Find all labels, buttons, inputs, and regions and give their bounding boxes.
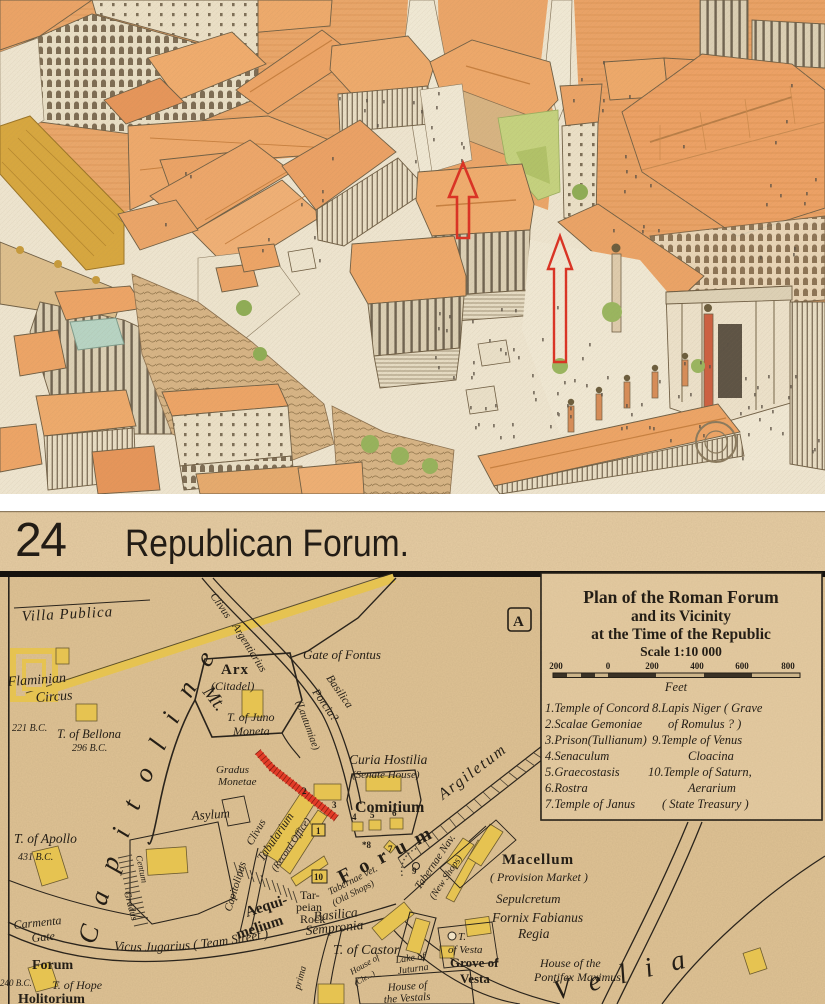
svg-text:T. of Bellona: T. of Bellona: [57, 727, 121, 741]
svg-text:6.Rostra: 6.Rostra: [545, 781, 588, 795]
svg-text:200: 200: [645, 661, 659, 671]
svg-text:T. of Hope: T. of Hope: [52, 978, 103, 992]
svg-text:Cloacina: Cloacina: [688, 749, 734, 763]
svg-text:Comitium: Comitium: [355, 799, 425, 816]
svg-text:T.: T.: [458, 931, 466, 943]
svg-text:Gradus: Gradus: [216, 764, 249, 776]
svg-text:at the Time of the Republic: at the Time of the Republic: [591, 626, 771, 643]
svg-text:the Vestals: the Vestals: [383, 991, 430, 1004]
svg-text:1: 1: [316, 826, 321, 836]
svg-text:Curia Hostilia: Curia Hostilia: [349, 752, 428, 767]
svg-text:2: 2: [302, 786, 307, 796]
svg-text:600: 600: [735, 661, 749, 671]
svg-text:221 B.C.: 221 B.C.: [12, 723, 47, 734]
svg-text:Gate of Fontus: Gate of Fontus: [303, 647, 381, 662]
svg-text:Asylum: Asylum: [190, 805, 230, 823]
svg-text:(Senate House): (Senate House): [352, 769, 420, 781]
svg-text:4.Senaculum: 4.Senaculum: [545, 749, 609, 763]
svg-text:Sepulcretum: Sepulcretum: [496, 891, 561, 906]
svg-text:9.Temple of Venus: 9.Temple of Venus: [652, 733, 742, 747]
svg-text:3: 3: [332, 800, 337, 810]
svg-text:Vesta: Vesta: [460, 971, 490, 986]
svg-text:7.Temple of Janus: 7.Temple of Janus: [545, 797, 635, 811]
svg-text:800: 800: [781, 661, 795, 671]
svg-text:( State Treasury ): ( State Treasury ): [662, 797, 749, 811]
svg-text:Gate: Gate: [31, 929, 56, 945]
svg-text:Regia: Regia: [517, 926, 550, 941]
svg-text:Republican Forum.: Republican Forum.: [125, 523, 409, 565]
svg-text:Forum: Forum: [32, 958, 74, 973]
svg-text:Circus: Circus: [35, 688, 73, 706]
svg-text:Plan of the Roman Forum: Plan of the Roman Forum: [583, 587, 779, 607]
svg-text:Scale 1:10 000: Scale 1:10 000: [640, 644, 722, 659]
svg-text:and its Vicinity: and its Vicinity: [631, 608, 731, 625]
svg-text:1.Temple of Concord: 1.Temple of Concord: [545, 701, 650, 715]
svg-text:Monetae: Monetae: [217, 776, 257, 788]
svg-text:( Provision Market ): ( Provision Market ): [490, 870, 588, 884]
svg-text:Feet: Feet: [664, 680, 688, 694]
svg-text:0: 0: [606, 661, 611, 671]
svg-text:5.Graecostasis: 5.Graecostasis: [545, 765, 620, 779]
svg-text:T. of Apollo: T. of Apollo: [14, 831, 77, 846]
svg-text:T. of Castor: T. of Castor: [333, 943, 400, 958]
svg-text:Fornix Fabianus: Fornix Fabianus: [491, 910, 583, 925]
svg-text:Arx: Arx: [221, 662, 249, 678]
svg-text:2.Scalae Gemoniae: 2.Scalae Gemoniae: [545, 717, 643, 731]
svg-text:A: A: [513, 614, 524, 630]
svg-text:4: 4: [352, 812, 357, 822]
svg-text:200: 200: [549, 661, 563, 671]
svg-text:T. of Juno: T. of Juno: [227, 710, 274, 724]
svg-text:10.Temple of Saturn,: 10.Temple of Saturn,: [648, 765, 752, 779]
svg-text:10: 10: [314, 872, 324, 882]
svg-text:400: 400: [690, 661, 704, 671]
svg-text:240 B.C.: 240 B.C.: [0, 978, 32, 988]
svg-text:Aerarium: Aerarium: [687, 781, 736, 795]
svg-text:of Romulus ? ): of Romulus ? ): [668, 717, 741, 731]
svg-text:Macellum: Macellum: [502, 852, 574, 868]
svg-text:3.Prison(Tullianum): 3.Prison(Tullianum): [544, 733, 647, 747]
svg-text:Holitorium: Holitorium: [18, 992, 85, 1004]
svg-text:8.Lapis Niger ( Grave: 8.Lapis Niger ( Grave: [652, 701, 763, 715]
svg-text:24: 24: [15, 514, 67, 567]
svg-text:*8: *8: [362, 840, 372, 850]
svg-text:Moneta: Moneta: [232, 724, 270, 738]
svg-text:7: 7: [388, 844, 393, 854]
svg-text:5: 5: [370, 810, 375, 820]
svg-text:6: 6: [392, 808, 397, 818]
svg-text:431 B.C.: 431 B.C.: [18, 852, 53, 863]
svg-text:Rock: Rock: [300, 912, 325, 926]
svg-text:296 B.C.: 296 B.C.: [72, 743, 107, 754]
